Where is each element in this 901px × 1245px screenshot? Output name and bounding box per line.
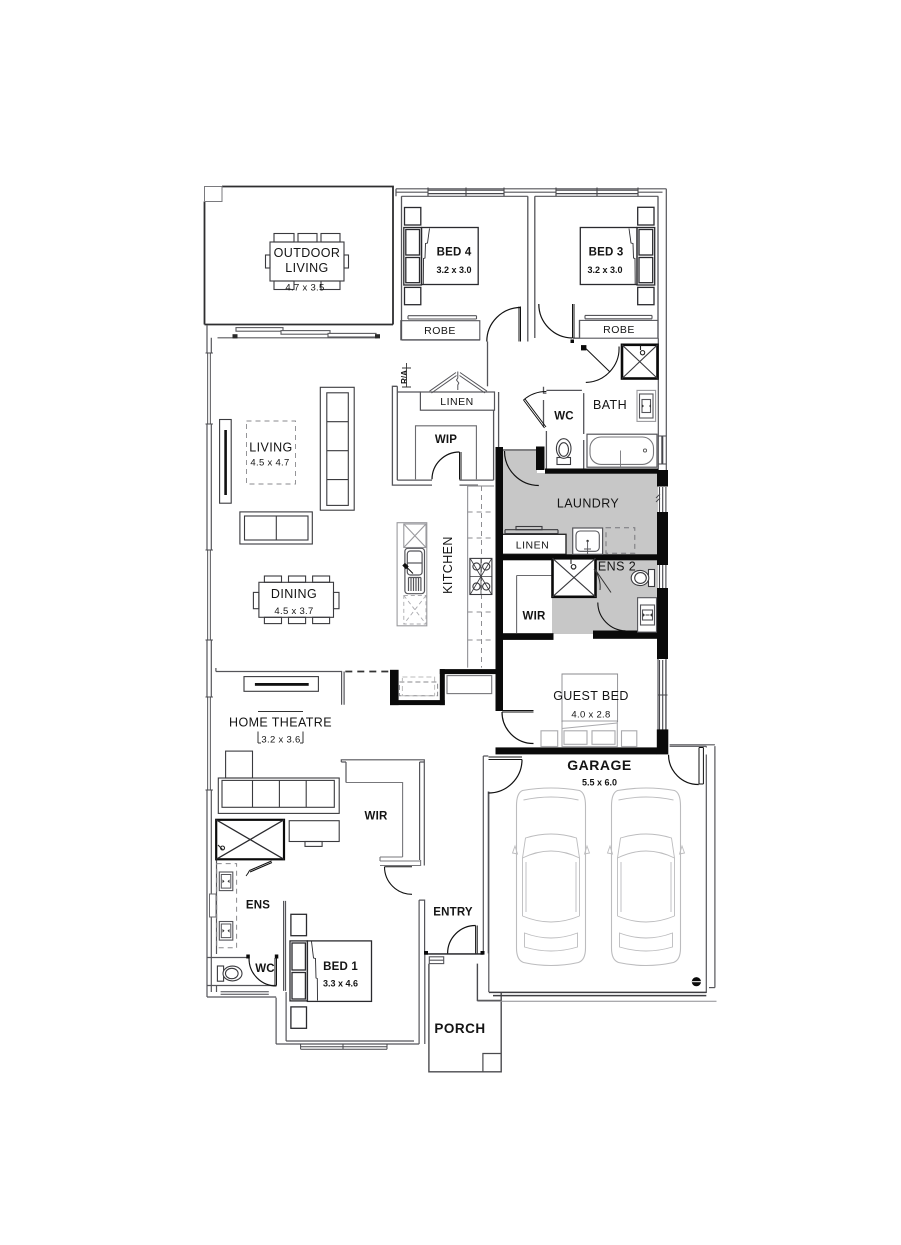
svg-text:WC: WC <box>255 963 275 975</box>
svg-text:LIVING: LIVING <box>285 261 328 275</box>
svg-text:3.2 x 3.6: 3.2 x 3.6 <box>261 735 300 746</box>
svg-text:3.2 x 3.0: 3.2 x 3.0 <box>587 265 622 275</box>
svg-text:DINING: DINING <box>271 587 317 601</box>
svg-text:4.5 x 3.7: 4.5 x 3.7 <box>274 606 313 617</box>
svg-text:ROBE: ROBE <box>424 325 456 337</box>
svg-text:PORCH: PORCH <box>434 1021 485 1036</box>
svg-text:5.5 x 6.0: 5.5 x 6.0 <box>582 778 617 788</box>
svg-text:4.5 x 4.7: 4.5 x 4.7 <box>250 458 289 469</box>
svg-text:WIP: WIP <box>435 434 457 446</box>
svg-text:BED 3: BED 3 <box>589 247 624 259</box>
svg-text:KITCHEN: KITCHEN <box>441 536 455 594</box>
svg-text:4.7 x 3.5: 4.7 x 3.5 <box>285 283 324 294</box>
svg-text:BED 1: BED 1 <box>323 961 358 973</box>
svg-text:ENS 2: ENS 2 <box>598 560 636 574</box>
svg-text:OUTDOOR: OUTDOOR <box>274 246 341 260</box>
svg-text:WIR: WIR <box>365 811 388 823</box>
svg-text:LAUNDRY: LAUNDRY <box>557 497 620 511</box>
svg-text:GUEST BED: GUEST BED <box>553 689 629 703</box>
svg-text:LINEN: LINEN <box>440 396 473 408</box>
svg-text:GARAGE: GARAGE <box>567 757 631 773</box>
svg-text:3.3 x 4.6: 3.3 x 4.6 <box>323 979 358 989</box>
svg-text:WIR: WIR <box>523 611 546 623</box>
svg-text:R/A: R/A <box>400 370 409 384</box>
svg-text:ENTRY: ENTRY <box>433 907 473 919</box>
svg-text:ROBE: ROBE <box>603 324 635 336</box>
svg-text:4.0 x 2.8: 4.0 x 2.8 <box>571 710 610 721</box>
svg-text:LINEN: LINEN <box>516 540 549 552</box>
svg-text:WC: WC <box>554 411 574 423</box>
svg-text:ENS: ENS <box>246 900 270 912</box>
svg-text:3.2 x 3.0: 3.2 x 3.0 <box>436 265 471 275</box>
svg-text:BATH: BATH <box>593 398 627 412</box>
svg-text:LIVING: LIVING <box>249 441 292 455</box>
svg-text:BED 4: BED 4 <box>437 247 472 259</box>
svg-text:HOME THEATRE: HOME THEATRE <box>229 716 332 730</box>
